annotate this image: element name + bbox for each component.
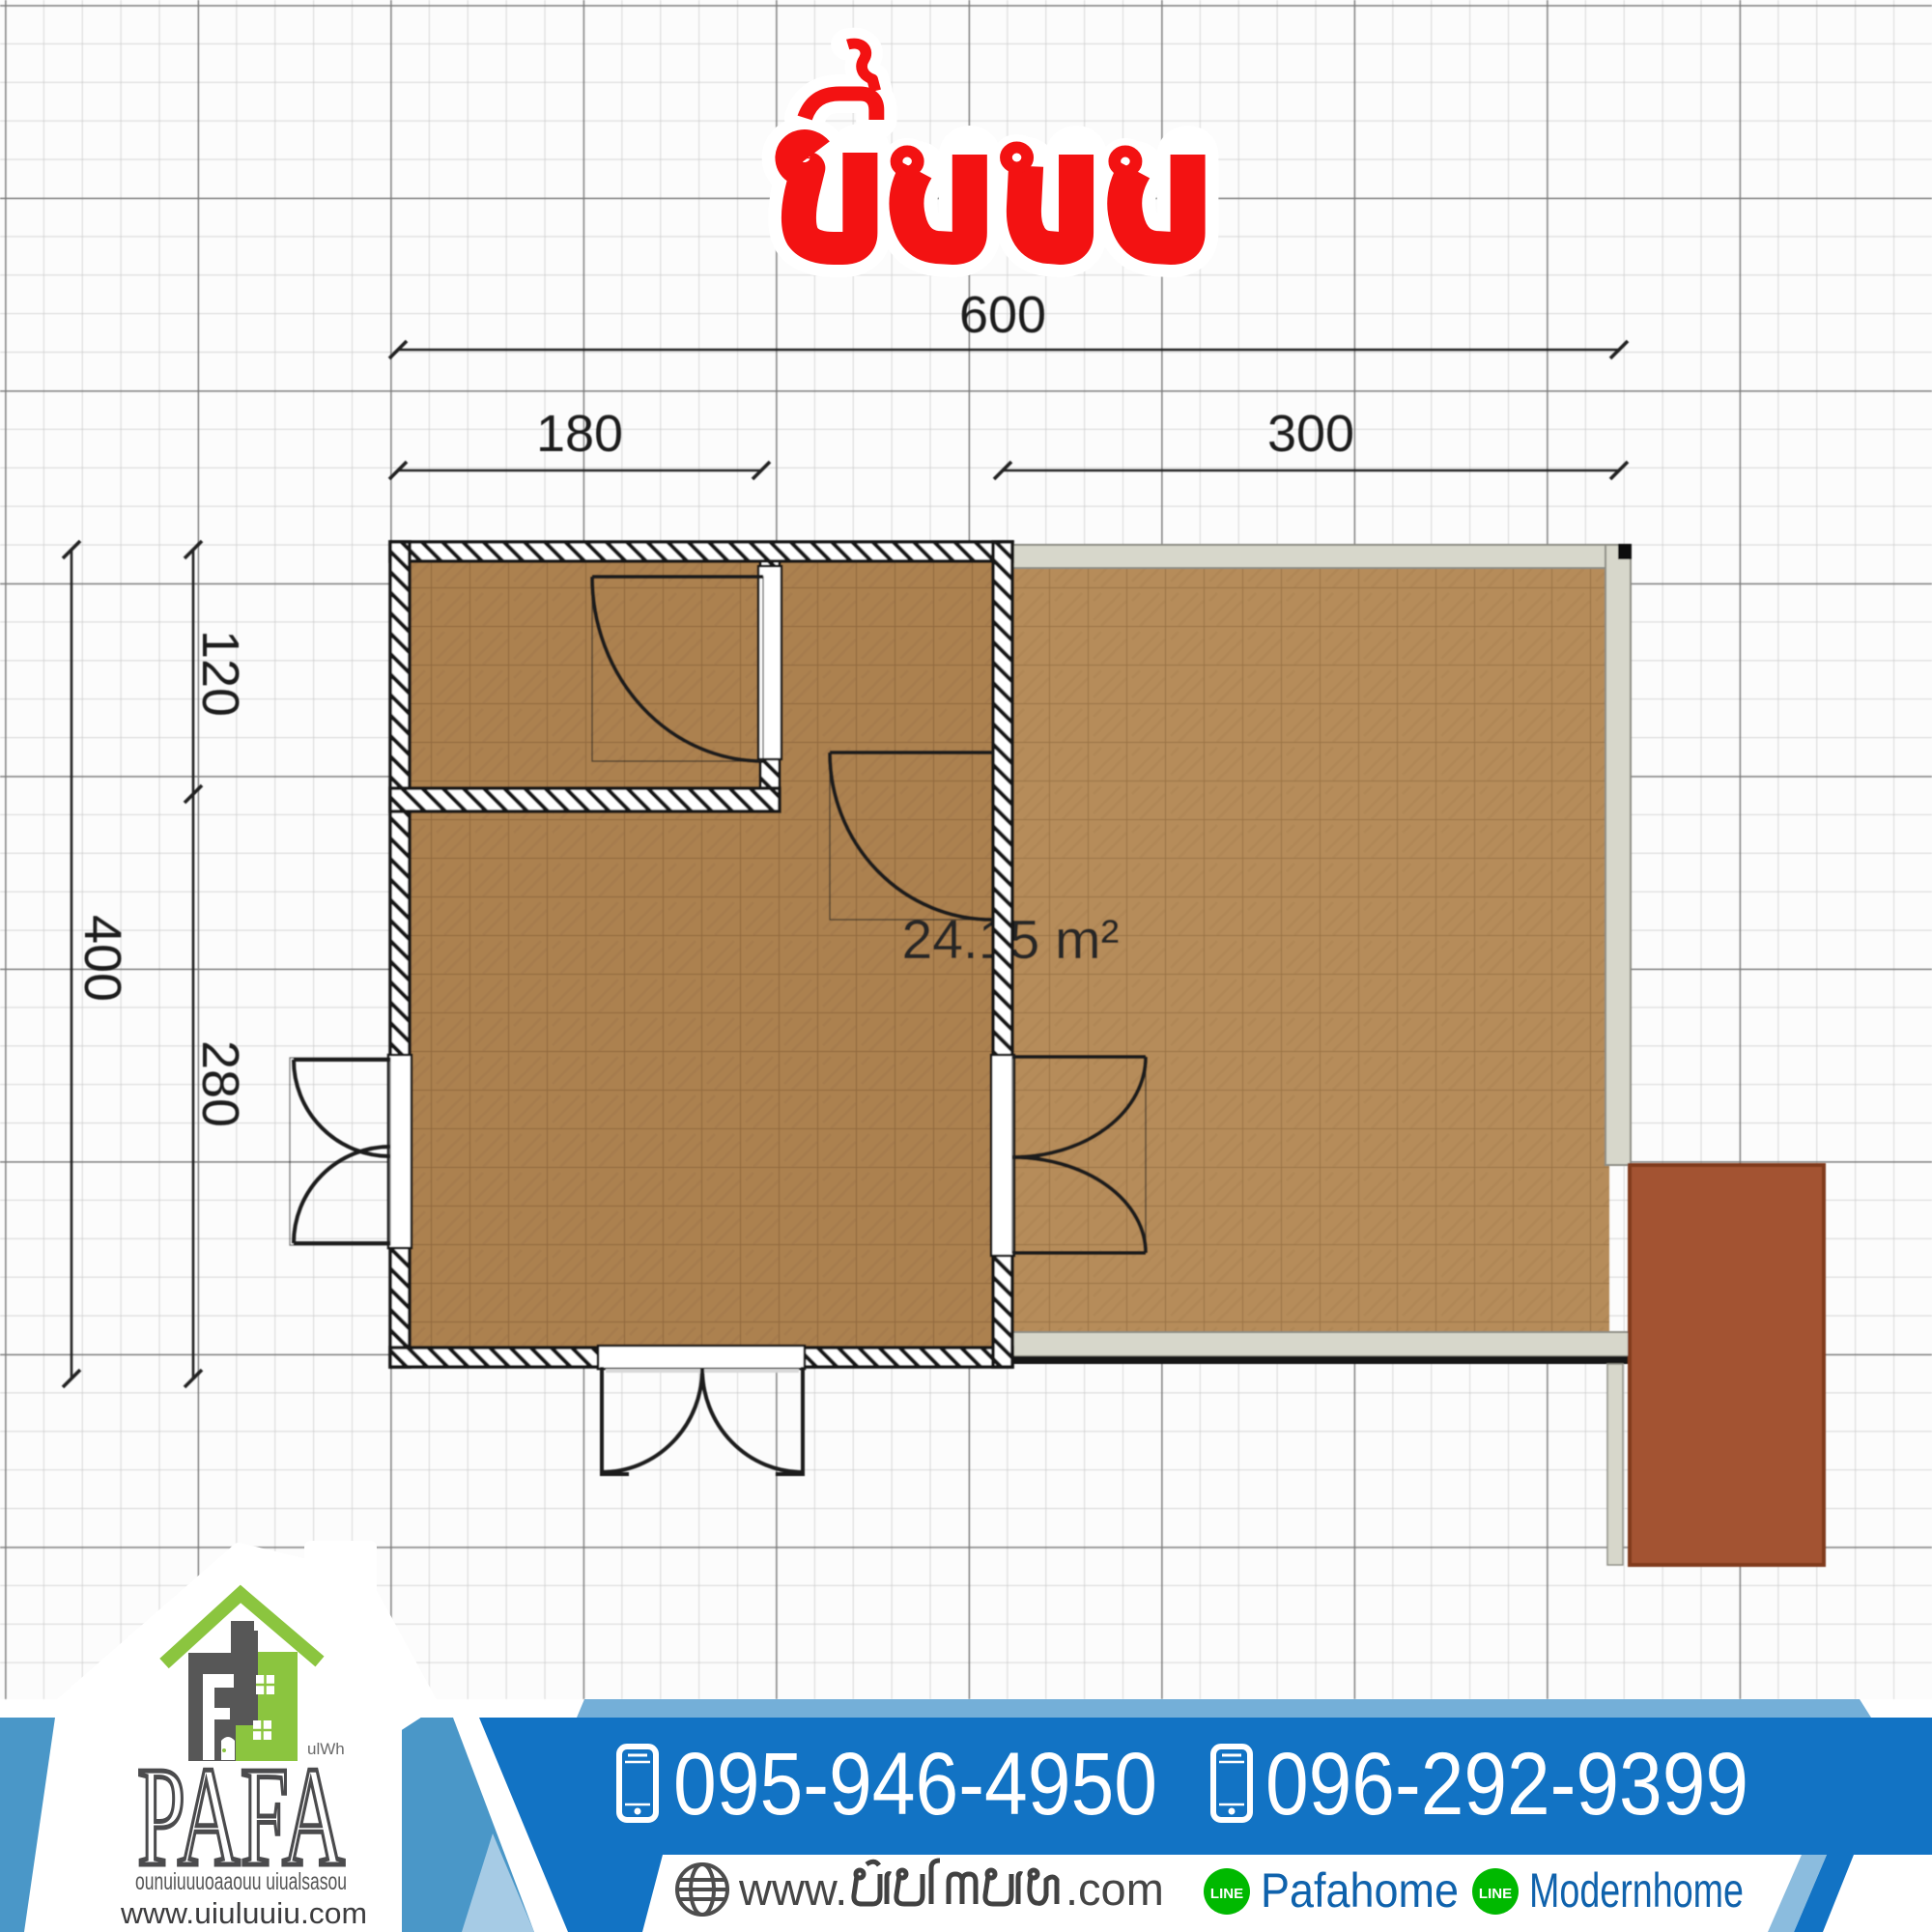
svg-text:180: 180	[536, 405, 623, 463]
svg-text:400: 400	[73, 915, 131, 1002]
svg-text:120: 120	[191, 630, 249, 717]
svg-text:LINE: LINE	[1210, 1886, 1243, 1902]
svg-text:Modernhome: Modernhome	[1529, 1863, 1744, 1918]
svg-text:095-946-4950: 095-946-4950	[673, 1735, 1157, 1833]
svg-text:LINE: LINE	[1479, 1886, 1512, 1902]
svg-text:300: 300	[1267, 405, 1354, 463]
svg-text:096-292-9399: 096-292-9399	[1265, 1735, 1748, 1833]
svg-text:www.uiuluuiu.com: www.uiuluuiu.com	[120, 1896, 367, 1930]
svg-text:280: 280	[191, 1040, 249, 1127]
svg-text:www.: www.	[738, 1863, 847, 1915]
svg-text:.com: .com	[1065, 1863, 1164, 1915]
svg-text:Pafahome: Pafahome	[1261, 1863, 1459, 1918]
svg-text:ounuiuuuoaaouu uiualsasou: ounuiuuuoaaouu uiualsasou	[135, 1868, 347, 1895]
svg-text:600: 600	[959, 286, 1046, 344]
